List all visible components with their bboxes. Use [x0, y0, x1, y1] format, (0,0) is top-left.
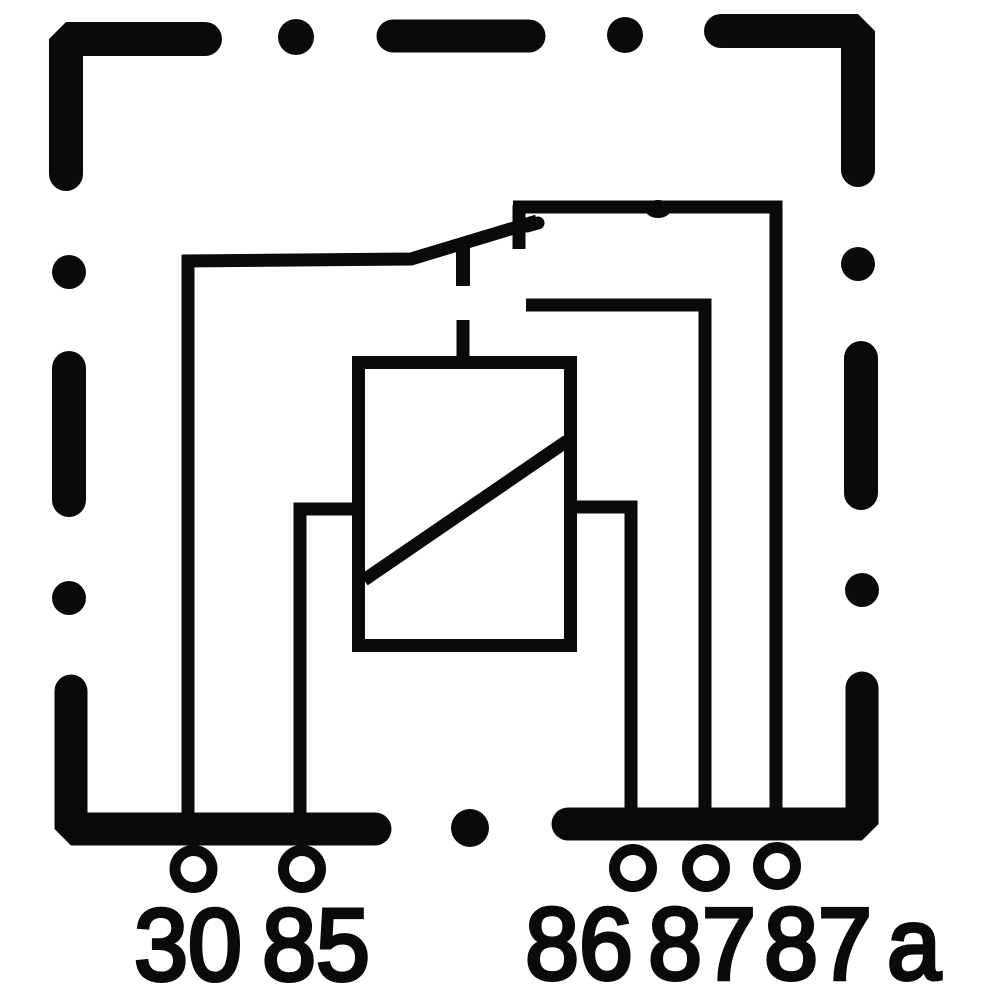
svg-text:87: 87: [648, 888, 756, 1000]
svg-text:86: 86: [525, 888, 633, 1000]
svg-text:a: a: [887, 888, 942, 1000]
svg-text:30: 30: [134, 889, 242, 1000]
svg-text:85: 85: [262, 889, 370, 1000]
svg-text:87: 87: [764, 888, 872, 1000]
